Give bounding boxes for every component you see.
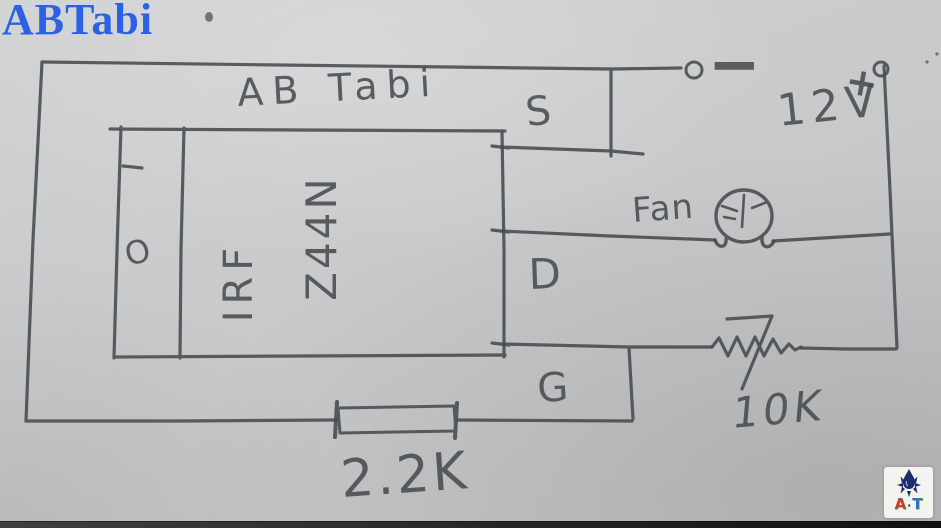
fan-foot-left (715, 239, 726, 246)
logo-dot: · (907, 498, 911, 513)
resistor-2k2-box (338, 406, 456, 433)
resistor-2k2-symbol (335, 402, 457, 438)
wire-gate-vertical (629, 348, 633, 419)
fan-blade-center (742, 195, 744, 227)
logo-letters: A · T (894, 497, 922, 513)
mosfet-top-edge (110, 129, 505, 131)
logo-letter-t: T (912, 497, 922, 512)
wire-fan-right (773, 234, 890, 241)
minus-terminal-circle (686, 62, 702, 78)
gate-pin-label: G (536, 364, 569, 412)
mosfet-right-edge (502, 131, 504, 357)
handwritten-title: AB Tabi (236, 60, 440, 115)
supply-minus-sign: − (710, 30, 759, 98)
drain-pin-label: D (528, 249, 562, 299)
mosfet-part-line1: IRF (216, 242, 262, 323)
stray-marks (205, 12, 939, 64)
stray-dot-right-2 (935, 52, 938, 55)
fan-blade-left-1 (722, 206, 737, 211)
circuit-wires (26, 62, 897, 421)
fan-foot-right (762, 238, 774, 247)
fan-symbol (715, 190, 774, 247)
resistor-2k2-tick-left (335, 402, 337, 437)
mosfet-part-line2: Z44N (297, 175, 346, 301)
wire-right-rail (884, 66, 897, 348)
video-letterbox-bar (0, 521, 941, 528)
wire-left-rail (26, 62, 42, 421)
fan-blade-left-2 (724, 217, 735, 219)
handwritten-labels: AB Tabi S D G O IRF Z44N 12V + − Fan 10K… (121, 30, 884, 510)
wire-bottom-right (457, 420, 632, 421)
water-drop (903, 469, 915, 489)
tick-source-pin (492, 146, 509, 148)
stray-tick-left-edge (123, 166, 142, 168)
mosfet-left-edge (114, 127, 121, 358)
wire-bottom-left (26, 420, 336, 421)
video-frame: ABTabi (0, 0, 941, 528)
logo-letter-a: A (894, 497, 906, 512)
tick-gate-pin (492, 343, 509, 345)
tick-drain-pin (492, 230, 509, 232)
wire-10k-out (801, 348, 896, 349)
channel-logo-badge: A · T (884, 467, 933, 518)
fan-blade-right (752, 202, 767, 208)
resistor-2k2-tick-right (455, 403, 457, 438)
stray-dot-right-1 (925, 60, 928, 63)
mosfet-tab-divider (180, 128, 184, 358)
wire-gate (501, 344, 630, 347)
stray-dot-top (205, 12, 213, 22)
wire-source (500, 147, 643, 154)
mosfet-bottom-edge (114, 355, 505, 357)
circuit-sketch: AB Tabi S D G O IRF Z44N 12V + − Fan 10K… (0, 0, 941, 528)
mosfet-mount-hole-label: O (121, 231, 155, 274)
resistor-2k2-label: 2.2K (339, 441, 472, 510)
fan-label: Fan (631, 187, 695, 231)
resistor-10k-symbol (712, 316, 801, 389)
resistor-10k-label: 10K (730, 381, 827, 438)
wire-drain (501, 231, 715, 240)
source-pin-label: S (523, 88, 553, 136)
